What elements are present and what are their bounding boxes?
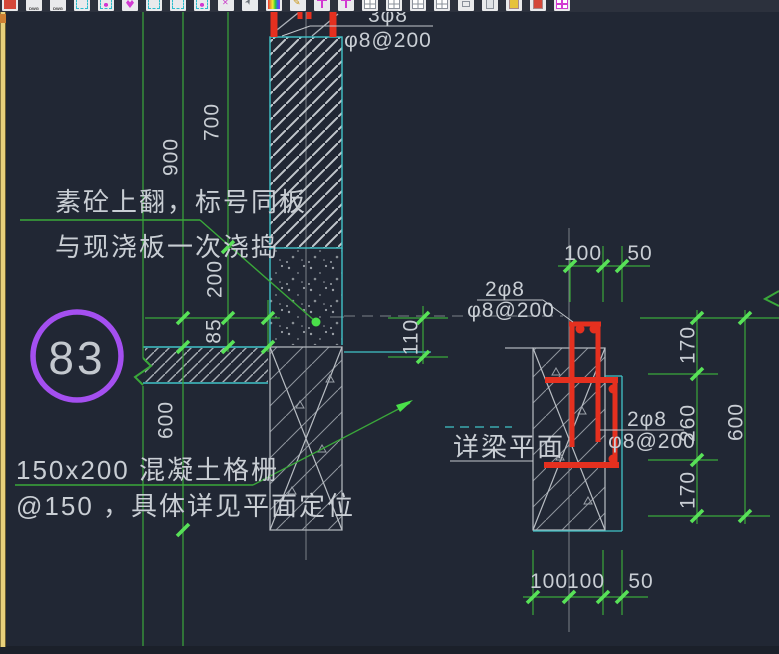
dim-50-b: 50 — [628, 570, 653, 593]
edit-pencil-icon[interactable] — [290, 0, 306, 11]
layout-grid-icon-4[interactable] — [434, 0, 450, 11]
cad-canvas[interactable]: 83 素砼上翻，标号同板 与现浇板一次浇捣 150x200 混凝土格栅 @150… — [0, 0, 779, 654]
copy-block-icon-2[interactable] — [170, 0, 186, 11]
note2-line2: @150 ，具体详见平面定位 — [16, 491, 355, 521]
note1-line2: 与现浇板一次浇捣 — [55, 232, 279, 262]
slab-lines-right — [344, 352, 512, 427]
rebar-label-mid-1: 2φ8 — [485, 278, 525, 301]
wall-upturn-section — [270, 13, 342, 345]
dim-85: 85 — [203, 318, 226, 343]
color-palette-icon[interactable] — [266, 0, 282, 11]
dim-600-left: 600 — [155, 401, 178, 439]
axis-tool-icon-2[interactable] — [338, 0, 354, 11]
cad-application-window: DWGDWG — [0, 0, 779, 654]
leader-arrowhead — [396, 400, 413, 412]
block-edit-icon[interactable] — [194, 0, 210, 11]
leader-dot — [312, 318, 321, 327]
dim-200: 200 — [204, 260, 227, 298]
slab-section-left — [143, 347, 268, 383]
dwg-file-icon-1[interactable]: DWG — [26, 0, 42, 11]
axis-tool-icon-1[interactable] — [314, 0, 330, 11]
dim-260: 260 — [677, 404, 700, 442]
table-tool-icon[interactable] — [554, 0, 570, 11]
copy-block-icon-1[interactable] — [146, 0, 162, 11]
doc-red-icon[interactable] — [530, 0, 546, 11]
rebar-label-mid-2: φ8@200 — [467, 299, 555, 322]
dwg-file-icon-2[interactable]: DWG — [50, 0, 66, 11]
doc-yellow-icon[interactable] — [506, 0, 522, 11]
layout-grid-icon-1[interactable] — [362, 0, 378, 11]
dim-900: 900 — [160, 138, 183, 176]
dim-170-top: 170 — [677, 326, 700, 364]
beam-plan-label: 详梁平面 — [453, 432, 565, 462]
note2-line1: 150x200 混凝土格栅 — [16, 455, 279, 485]
explode-icon[interactable] — [218, 0, 234, 11]
layout-grid-icon-3[interactable] — [410, 0, 426, 11]
callout-number: 83 — [48, 332, 105, 384]
centerlines — [306, 12, 569, 632]
dim-50-top: 50 — [627, 242, 652, 265]
rebar-label-top-2: φ8@200 — [344, 29, 432, 52]
dim-600-right: 600 — [725, 403, 748, 441]
dim-700: 700 — [201, 103, 224, 141]
dim-110: 110 — [400, 319, 423, 355]
insert-block-icon[interactable] — [98, 0, 114, 11]
new-file-icon[interactable] — [2, 0, 18, 11]
side-strip-notch — [0, 14, 6, 23]
dim-100-top: 100 — [564, 242, 602, 265]
detail-callout-83[interactable]: 83 — [33, 312, 121, 400]
rebar-labels: 3φ8 φ8@200 2φ8 φ8@200 2φ8 φ8@200 — [344, 4, 696, 453]
layout-grid-icon-2[interactable] — [386, 0, 402, 11]
paste-block-icon[interactable] — [74, 0, 90, 11]
note1-line1: 素砼上翻，标号同板 — [55, 187, 307, 217]
toolbar: DWGDWG — [0, 0, 779, 12]
clipboard-icon[interactable] — [482, 0, 498, 11]
select-cursor-icon[interactable] — [242, 0, 258, 11]
small-box-icon[interactable] — [458, 0, 474, 11]
dim-100-b1: 100 — [530, 570, 568, 593]
dim-170-bottom: 170 — [677, 471, 700, 509]
favorite-tool-icon[interactable] — [122, 0, 138, 11]
dim-100-b2: 100 — [567, 570, 605, 593]
side-scroll-strip[interactable] — [0, 12, 6, 647]
rebar-label-right-1: 2φ8 — [627, 408, 667, 431]
